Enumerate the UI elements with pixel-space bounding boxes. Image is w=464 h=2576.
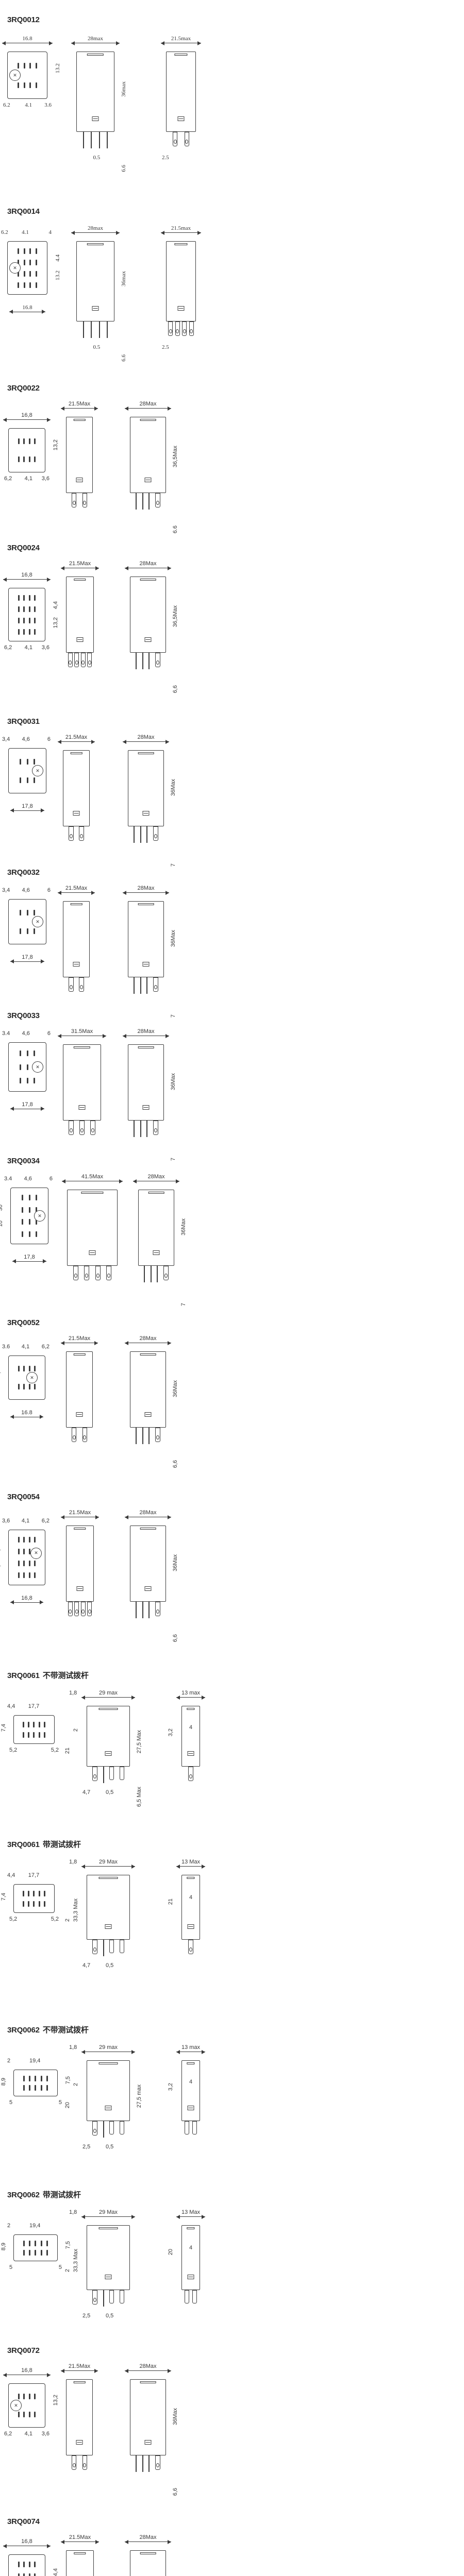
- front-view-drawing: 21.5Max: [66, 1351, 93, 1447]
- dim-arrow-line: [3, 579, 51, 580]
- pin-contact: [29, 2562, 30, 2567]
- pin-row: [14, 2558, 40, 2570]
- pin-row: [130, 1428, 166, 1447]
- relay-outline: [138, 1190, 174, 1266]
- pin-contact: [33, 1722, 35, 1727]
- dim-arrow-line: [125, 568, 171, 568]
- dim-label: 6,2: [42, 1518, 49, 1524]
- section-3RQ0061: 3RQ0061不带测试拨杆4,417,77,45,25,21,829 max22…: [0, 1670, 464, 1839]
- vent-detail: [140, 579, 156, 581]
- pin: [120, 2121, 124, 2134]
- pin-contact: [34, 1561, 36, 1566]
- dim-label: 6,2: [42, 1344, 49, 1350]
- pin-contact: [34, 928, 35, 934]
- pin: [103, 2121, 104, 2138]
- pin: [69, 826, 74, 841]
- pin-hole: [75, 1609, 78, 1614]
- vent-detail: [138, 1046, 154, 1048]
- dim-arrow-line: [62, 1181, 123, 1181]
- pin: [155, 1602, 160, 1616]
- pin-hole: [88, 1609, 91, 1614]
- dim-label: 20: [65, 2102, 71, 2108]
- dimension-top: 28Max: [125, 2535, 171, 2542]
- screw-icon: ✕: [10, 2400, 22, 2411]
- latch-icon: [77, 637, 84, 642]
- dim-label: 5,2: [9, 1917, 17, 1922]
- dimension-top: 21.5Max: [58, 735, 95, 742]
- section-id: 3RQ0031: [7, 717, 40, 726]
- dim-label: 28Max: [139, 401, 156, 407]
- pin-row: [67, 1266, 118, 1285]
- pin: [136, 1428, 137, 1444]
- dim-label: 13 Max: [181, 2209, 200, 2215]
- front-view-drawing: 41.5Max: [67, 1190, 118, 1285]
- pin-contact: [27, 928, 28, 934]
- section-heading: 3RQ0034: [7, 1157, 40, 1165]
- pin-contact: [20, 910, 21, 916]
- pin: [192, 2121, 197, 2134]
- pin-contact: [28, 1901, 29, 1907]
- dim-label: 17,8: [24, 1254, 35, 1260]
- dim-arrow-line: [61, 408, 98, 409]
- section-3RQ0022: 3RQ002216,813,26,24,13,621.5Max28Max36,5…: [0, 384, 464, 544]
- pin: [142, 1428, 143, 1444]
- dim-label: 29 Max: [99, 2209, 118, 2215]
- pin-row: [14, 1557, 40, 1569]
- dimension-top: 28Max: [123, 1029, 169, 1036]
- dim-label: 5: [9, 2265, 12, 2270]
- pin: [87, 1602, 92, 1616]
- pin-hole: [169, 329, 172, 333]
- pin-contact: [29, 595, 30, 601]
- dim-label: 3,6: [42, 2431, 49, 2437]
- pin-hole: [83, 2463, 86, 2467]
- relay-outline: [128, 901, 164, 977]
- dim-label: 3,2: [168, 1728, 174, 1736]
- pin-contact: [44, 1901, 45, 1907]
- side-view-drawing: 13 Max214: [181, 1875, 200, 1959]
- pin-hole: [93, 1947, 96, 1952]
- pin-hole: [80, 1128, 84, 1132]
- pin-hole: [69, 1609, 72, 1614]
- dim-label: 36max: [121, 271, 127, 286]
- relay-outline: [130, 2379, 166, 2455]
- dim-arrow-line: [125, 1517, 171, 1517]
- section-heading: 3RQ0032: [7, 868, 40, 877]
- pin-row: [66, 2455, 93, 2475]
- dim-label: 28max: [88, 225, 103, 231]
- pin-contact: [23, 1891, 24, 1896]
- dimension-top: 28Max: [125, 1510, 171, 1517]
- dim-label: 3.6: [2, 1344, 10, 1350]
- dim-label: 13,2: [0, 1369, 2, 1380]
- bottom-view-drawing: ✕6.24.144.413.216.8: [7, 241, 47, 295]
- pin-contact: [35, 2241, 36, 2246]
- dimension-top: 13 max: [176, 1690, 205, 1698]
- dimension-bot: 16.8: [10, 1410, 43, 1417]
- relay-outline: [66, 1351, 93, 1428]
- pin-contact: [29, 1231, 30, 1237]
- dim-label: 4,1: [25, 476, 32, 482]
- pin-row: [14, 1569, 40, 1581]
- dim-label: 17,8: [22, 803, 32, 809]
- pin: [155, 493, 160, 507]
- pin: [83, 132, 84, 148]
- pin-contact: [18, 629, 20, 635]
- pin-hole: [96, 1274, 100, 1278]
- dim-label: 21.5Max: [69, 401, 90, 407]
- pin-hole: [156, 2463, 159, 2467]
- section-heading: 3RQ0012: [7, 15, 40, 24]
- pin: [99, 132, 100, 148]
- pin-contact: [24, 282, 25, 288]
- pin-contact: [34, 777, 35, 783]
- dim-arrow-line: [58, 1036, 106, 1036]
- dim-label: 13.2: [55, 270, 61, 280]
- pin-hole: [190, 329, 193, 333]
- dim-label: 6,6: [173, 685, 178, 693]
- dim-label: 2,5: [82, 2313, 90, 2319]
- dim-label: 16,8: [21, 572, 32, 578]
- dim-label: 3.6: [44, 103, 52, 108]
- dim-label: 0.5: [93, 345, 101, 350]
- pin-contact: [29, 248, 31, 254]
- pin: [109, 1940, 114, 1953]
- pin-hole: [185, 140, 188, 144]
- pin-row: [63, 977, 90, 997]
- vent-detail: [99, 2227, 118, 2229]
- section-subtitle: 带测试拨杆: [43, 2191, 81, 2199]
- pin-contact: [29, 1195, 30, 1200]
- pin-hole: [156, 660, 159, 665]
- vent-detail: [140, 2552, 156, 2554]
- dim-arrow-line: [9, 312, 45, 312]
- pin: [134, 826, 135, 843]
- dim-arrow-line: [81, 1866, 135, 1867]
- dim-label: 6.2: [3, 103, 10, 108]
- dim-arrow-line: [71, 43, 120, 43]
- pin-row: [128, 1121, 164, 1140]
- pin-hole: [70, 834, 73, 838]
- relay-outline: [66, 417, 93, 493]
- pin-contact: [29, 282, 31, 288]
- dim-label: 7,5: [65, 2076, 71, 2084]
- relay-outline: [66, 2379, 93, 2455]
- pin-hole: [80, 834, 83, 838]
- dim-label: 13 Max: [181, 1859, 200, 1865]
- relay-outline: [130, 577, 166, 653]
- bottom-view-drawing: ✕16,84,413,26,24,13,6: [8, 2554, 45, 2576]
- dim-label: 21.5max: [171, 36, 191, 42]
- pin: [92, 1767, 97, 1781]
- dim-arrow-line: [125, 2370, 171, 2371]
- dim-label: 8,9: [1, 2078, 7, 2086]
- pin-hole: [80, 985, 83, 989]
- pin-contact: [29, 1537, 30, 1543]
- pin-contact: [29, 1219, 30, 1225]
- dim-label: 4: [181, 2245, 200, 2251]
- pin-row: [130, 493, 166, 513]
- pin-hole: [154, 985, 157, 989]
- pin-contact: [27, 759, 28, 765]
- screw-icon: ✕: [9, 262, 21, 274]
- relay-outline: [67, 1190, 118, 1266]
- relay-outline: [166, 52, 196, 132]
- pin-contact: [28, 1732, 29, 1738]
- pin-contact: [23, 2076, 25, 2081]
- front-view-drawing: 21.5Max: [63, 750, 90, 846]
- section-id: 3RQ0061: [7, 1840, 40, 1849]
- pin-contact: [34, 606, 36, 612]
- pin-contact: [20, 928, 21, 934]
- section-3RQ0012: 3RQ0012✕16.813.26.24.13.628max36max6.60.…: [0, 15, 464, 207]
- dimension-top: 16,8: [3, 2368, 51, 2375]
- pin: [103, 1940, 104, 1956]
- pin: [182, 321, 187, 336]
- vent-detail: [87, 243, 104, 245]
- vent-detail: [138, 752, 154, 754]
- dim-label: 0,5: [106, 2144, 113, 2150]
- dim-label: 10: [0, 1221, 4, 1227]
- dim-label: 10: [0, 761, 2, 768]
- pin-row: [181, 2121, 200, 2141]
- dim-label: 7,5: [65, 2241, 71, 2249]
- dim-label: 28Max: [139, 1335, 156, 1342]
- dim-label: 4,6: [22, 1031, 30, 1037]
- dim-arrow-line: [123, 741, 169, 742]
- pin-hole: [83, 501, 86, 505]
- dimension-top: 21.5Max: [61, 2364, 98, 2371]
- section-heading: 3RQ0061不带测试拨杆: [7, 1670, 89, 1681]
- dim-label: 3,6: [2, 1518, 10, 1524]
- pin-hole: [174, 140, 177, 144]
- dim-label: 10: [0, 1057, 2, 1063]
- pin-hole: [91, 1128, 94, 1132]
- vent-detail: [187, 1708, 194, 1710]
- dim-arrow-line: [61, 2370, 98, 2371]
- pin: [168, 321, 173, 336]
- screw-icon: ✕: [32, 916, 43, 927]
- pin-contact: [46, 2085, 48, 2091]
- dim-label: 0.5: [93, 155, 101, 161]
- dim-label: 7: [181, 1303, 187, 1306]
- pin-hole: [154, 834, 157, 838]
- pin-hole: [70, 1128, 73, 1132]
- pin: [148, 653, 150, 669]
- pin-contact: [35, 2076, 36, 2081]
- front-view-drawing: 1,829 max22127,5 Max6,5 Max4,70,5: [87, 1706, 130, 1786]
- dimension-bot: 17,8: [10, 804, 44, 811]
- pin-contact: [44, 1891, 45, 1896]
- pin-contact: [27, 910, 28, 916]
- dim-label: 30: [0, 1205, 4, 1211]
- dim-label: 2.5: [162, 155, 169, 161]
- dim-label: 28Max: [139, 2534, 156, 2540]
- pin-contact: [29, 606, 30, 612]
- dim-label: 36Max: [173, 1380, 178, 1397]
- dim-label: 6.6: [121, 165, 127, 172]
- relay-outline: ✕: [8, 2383, 45, 2428]
- pin-contact: [34, 1537, 36, 1543]
- pin-contact: [34, 2412, 36, 2417]
- pin-contact: [35, 2250, 36, 2256]
- dim-label: 2: [7, 2223, 10, 2229]
- pin: [83, 321, 84, 338]
- front-view-drawing: 21.5Max: [66, 577, 94, 672]
- dim-label: 4,4: [0, 1562, 2, 1570]
- section-heading: 3RQ0062不带测试拨杆: [7, 2024, 89, 2035]
- section-id: 3RQ0062: [7, 2191, 40, 2199]
- pin: [136, 2455, 137, 2472]
- dim-label: 0,5: [106, 1963, 113, 1969]
- screw-icon: ✕: [34, 1210, 45, 1222]
- pin-row: [87, 1940, 130, 1959]
- pin: [134, 977, 135, 994]
- pin: [109, 2121, 114, 2134]
- bottom-view-drawing: 16,84,413,26,24,13,6: [8, 588, 45, 641]
- vent-detail: [174, 243, 187, 245]
- bottom-view-drawing: ✕3,44,661017,8: [8, 899, 46, 944]
- relay-outline: ✕: [8, 748, 46, 793]
- dim-label: 13,2: [53, 617, 59, 628]
- dim-label: 16,8: [21, 412, 32, 418]
- pin-hole: [83, 1435, 86, 1439]
- dim-label: 21.5Max: [69, 561, 91, 567]
- pin-contact: [29, 2241, 30, 2246]
- pin-contact: [29, 1561, 30, 1566]
- latch-icon: [143, 811, 150, 816]
- pin-contact: [23, 1901, 24, 1907]
- relay-outline: ✕: [7, 241, 47, 295]
- pin-row: [19, 2239, 52, 2248]
- dim-label: 2: [73, 2083, 79, 2086]
- dim-label: 20: [168, 2249, 174, 2255]
- pin-contact: [34, 759, 35, 765]
- dim-label: 36,5Max: [173, 446, 178, 467]
- vent-detail: [99, 1708, 118, 1710]
- dim-label: 1,8: [69, 1690, 77, 1696]
- dim-label: 17,8: [22, 1101, 32, 1108]
- dim-arrow-line: [81, 2216, 135, 2217]
- pin-contact: [18, 1572, 20, 1578]
- section-id: 3RQ0022: [7, 384, 40, 393]
- dim-arrow-line: [3, 2375, 51, 2375]
- side-view-drawing: 13 max43,2: [181, 1706, 200, 1786]
- dim-label: 3,4: [2, 888, 10, 893]
- pin-row: [130, 2455, 166, 2475]
- pin-hole: [156, 1609, 159, 1614]
- pin: [140, 977, 141, 994]
- relay-outline: [76, 241, 114, 321]
- side-view-drawing: 28Max36,5Max6,6: [130, 577, 166, 672]
- screw-icon: ✕: [32, 1061, 43, 1073]
- relay-outline: ✕: [8, 2554, 45, 2576]
- relay-outline: [66, 577, 94, 653]
- pin-contact: [23, 595, 25, 601]
- pin: [157, 1266, 158, 1282]
- dimension-top: 21.5Max: [61, 401, 98, 409]
- pin: [106, 1266, 111, 1280]
- screw-icon: ✕: [30, 1548, 42, 1559]
- pin: [155, 2455, 160, 2470]
- dim-label: 4.1: [25, 103, 32, 108]
- pin: [74, 1602, 79, 1616]
- pin-contact: [46, 2241, 48, 2246]
- pin-contact: [24, 63, 25, 69]
- pin: [188, 1940, 193, 1954]
- pin: [151, 1266, 152, 1282]
- relay-outline: [63, 901, 90, 977]
- dim-label: 7: [171, 863, 176, 867]
- dim-arrow-line: [10, 1602, 43, 1603]
- relay-outline: [130, 417, 166, 493]
- dim-arrow-line: [176, 2052, 205, 2052]
- pin: [72, 493, 76, 507]
- pin-contact: [24, 260, 25, 265]
- dim-label: 21.5Max: [69, 1510, 91, 1516]
- vent-detail: [140, 2381, 156, 2383]
- pin-contact: [22, 1195, 23, 1200]
- dim-label: 21.5Max: [69, 1335, 90, 1342]
- vent-detail: [74, 2381, 86, 2383]
- section-subtitle: 不带测试拨杆: [43, 2026, 89, 2035]
- pin-contact: [41, 2250, 42, 2256]
- pin: [90, 1121, 95, 1135]
- pin-row: [19, 2248, 52, 2257]
- latch-icon: [92, 306, 99, 311]
- pin-row: [14, 1534, 40, 1546]
- side-view-drawing: 28Max36,5Max6.6: [130, 417, 166, 513]
- dim-label: 2: [65, 1919, 71, 1922]
- pin-row: [13, 245, 42, 257]
- dim-label: 28Max: [139, 2363, 156, 2369]
- dim-label: 36Max: [171, 930, 176, 947]
- pin-row: [181, 1940, 200, 1959]
- pin: [107, 321, 108, 338]
- dim-label: 16.8: [22, 304, 32, 311]
- pin: [109, 2290, 114, 2303]
- relay-outline: ✕: [8, 1042, 46, 1092]
- pin-contact: [34, 2394, 36, 2399]
- dim-label: 16,8: [21, 2367, 32, 2374]
- dim-label: 8,9: [1, 2243, 7, 2250]
- dim-label: 5: [59, 2100, 62, 2106]
- pin-contact: [29, 618, 30, 623]
- pin-contact: [29, 2085, 30, 2091]
- dimension-top: 13 Max: [176, 1859, 205, 1867]
- dim-label: 4,6: [24, 1176, 32, 1182]
- pin-contact: [18, 1537, 20, 1543]
- pin-contact: [23, 2573, 25, 2576]
- dimension-top: 16,8: [3, 413, 51, 420]
- dim-label: 4: [181, 1895, 200, 1901]
- pin-row: [16, 1228, 43, 1241]
- pin-row: [19, 1719, 49, 1730]
- pin-contact: [23, 1572, 25, 1578]
- dim-label: 2: [7, 2058, 10, 2064]
- dimension-top: 29 Max: [81, 2210, 135, 2217]
- vent-detail: [74, 1528, 86, 1530]
- pin-row: [19, 2074, 52, 2083]
- latch-icon: [105, 2275, 112, 2279]
- pin-hole: [189, 1947, 192, 1952]
- dim-label: 6: [49, 1176, 53, 1182]
- relay-outline: [13, 2070, 58, 2096]
- pin-contact: [27, 1050, 28, 1056]
- relay-outline: ✕: [10, 1188, 48, 1244]
- pin-contact: [18, 2562, 20, 2567]
- dim-label: 19,4: [29, 2223, 40, 2229]
